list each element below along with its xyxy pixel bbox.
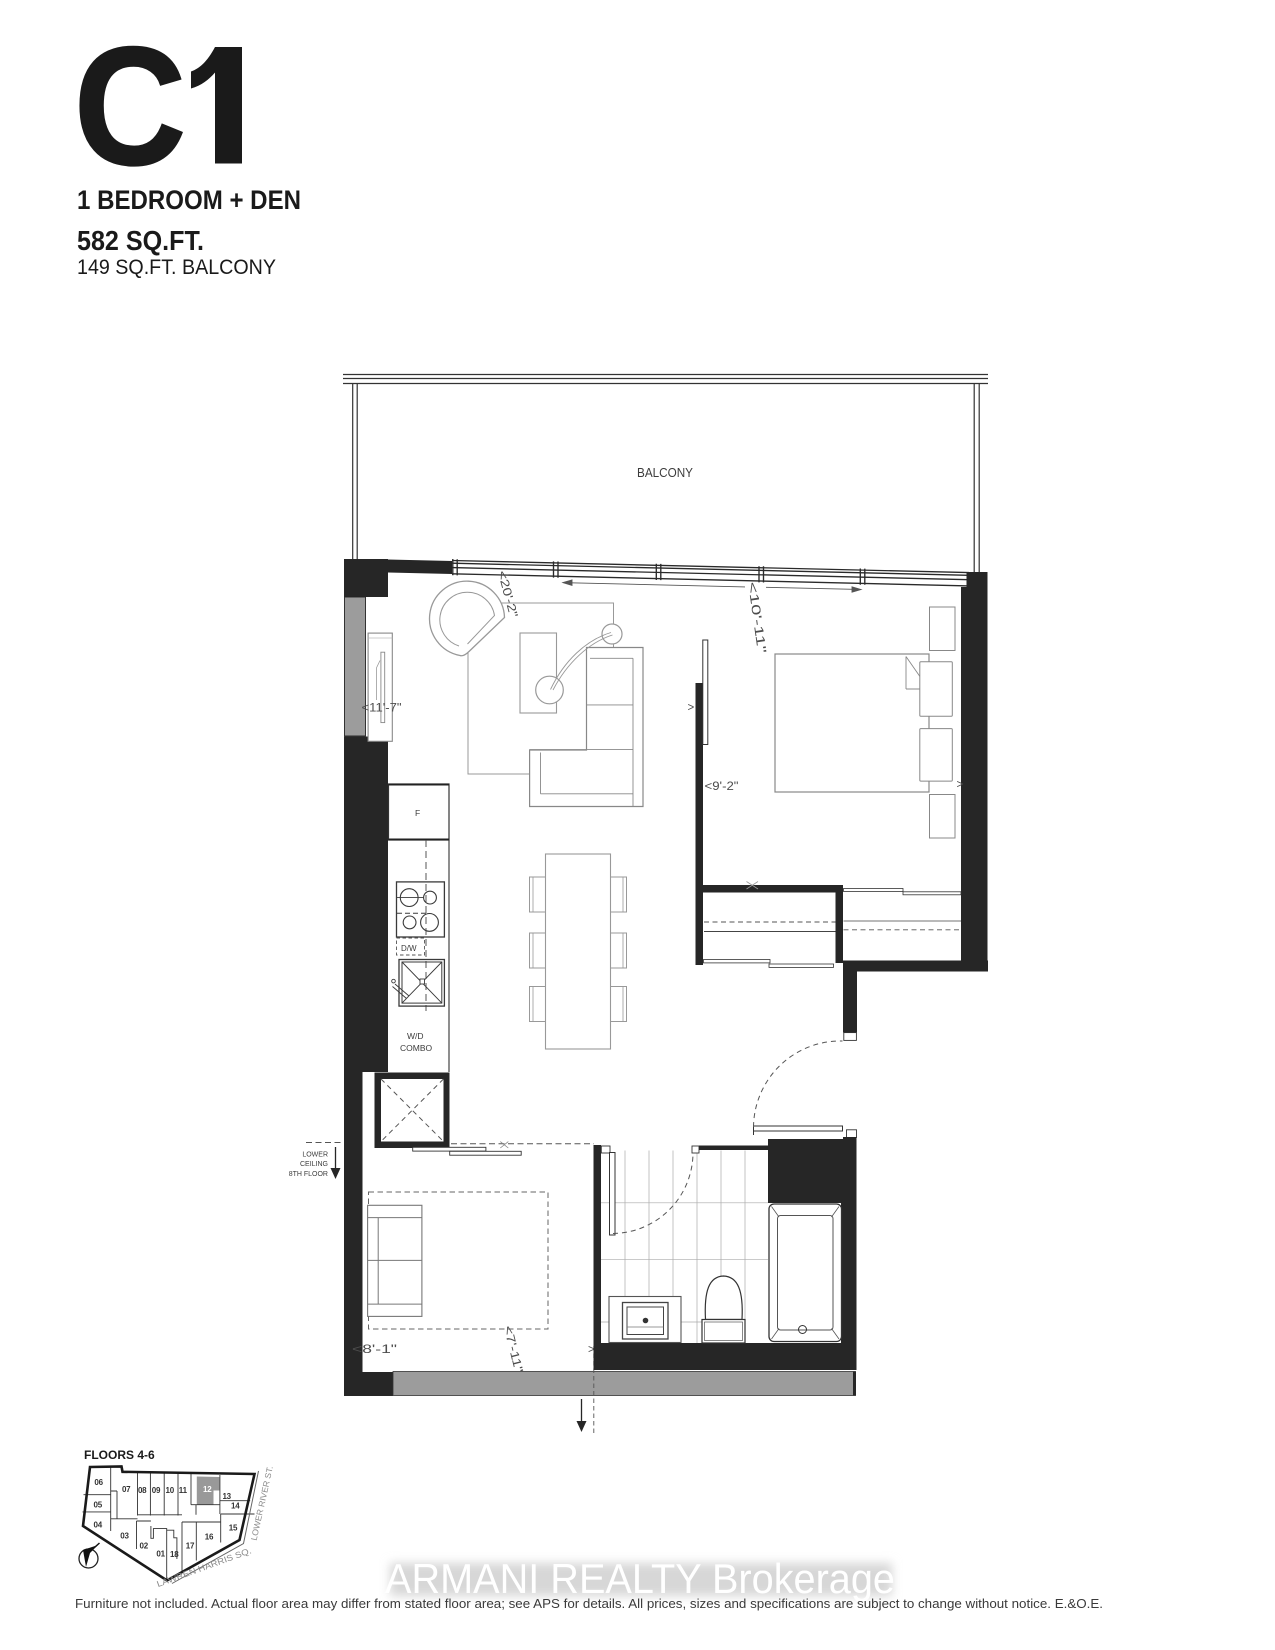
svg-text:>: > [688,702,695,714]
svg-text:10: 10 [166,1486,175,1495]
svg-text:14: 14 [231,1502,240,1511]
svg-text:02: 02 [140,1542,149,1551]
svg-text:17: 17 [186,1542,195,1551]
svg-text:>: > [957,779,964,791]
svg-text:1 BEDROOM + DEN: 1 BEDROOM + DEN [77,185,301,215]
svg-text:LOWER: LOWER [302,1152,328,1159]
svg-text:W/D: W/D [407,1031,424,1041]
svg-text:12: 12 [203,1485,212,1494]
svg-text:07: 07 [122,1485,131,1494]
svg-text:582 SQ.FT.: 582 SQ.FT. [77,225,204,256]
svg-text:<11'-7": <11'-7" [362,703,402,715]
svg-text:C: C [74,12,186,200]
svg-text:D/W: D/W [401,944,417,953]
svg-text:149 SQ.FT. BALCONY: 149 SQ.FT. BALCONY [77,256,276,279]
svg-text:13: 13 [222,1492,231,1501]
svg-text:03: 03 [120,1532,129,1541]
svg-text:01: 01 [156,1550,165,1559]
svg-text:BALCONY: BALCONY [637,465,693,480]
svg-text:F: F [415,808,420,818]
svg-text:COMBO: COMBO [400,1043,433,1053]
svg-text:04: 04 [94,1521,103,1530]
svg-text:<9'-2": <9'-2" [705,781,739,793]
svg-text:8TH FLOOR: 8TH FLOOR [289,1171,328,1178]
svg-text:15: 15 [229,1524,238,1533]
svg-text:05: 05 [94,1501,103,1510]
svg-text:11: 11 [179,1486,188,1495]
svg-text:06: 06 [94,1478,103,1487]
svg-text:ARMANI REALTY Brokerage: ARMANI REALTY Brokerage [385,1555,895,1602]
svg-text:18: 18 [170,1550,179,1559]
svg-text:16: 16 [205,1533,214,1542]
svg-text:Furniture not included. Actual: Furniture not included. Actual floor are… [75,1597,1103,1611]
svg-text:FLOORS 4-6: FLOORS 4-6 [84,1448,155,1462]
svg-text:CEILING: CEILING [300,1161,328,1168]
svg-text:09: 09 [152,1486,161,1495]
svg-text:<8'-1": <8'-1" [352,1344,397,1356]
svg-text:08: 08 [138,1486,147,1495]
